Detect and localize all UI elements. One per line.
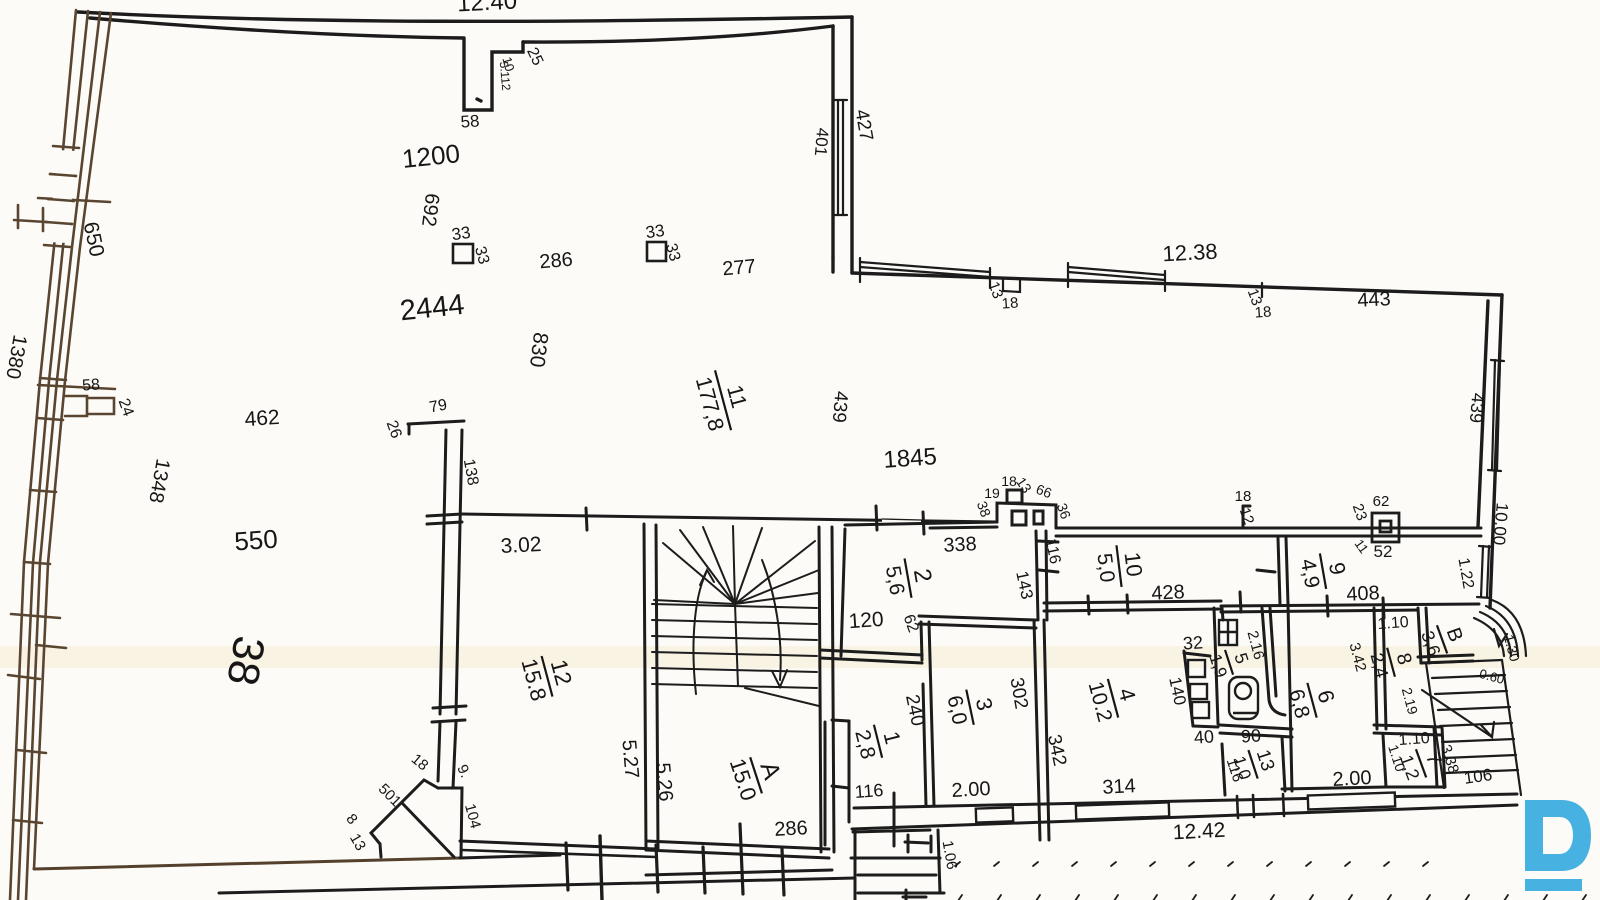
svg-text:33: 33	[450, 223, 471, 244]
svg-text:1845: 1845	[883, 443, 938, 474]
svg-text:439: 439	[1466, 392, 1489, 424]
svg-text:692: 692	[417, 192, 443, 228]
svg-text:2.00: 2.00	[951, 778, 991, 802]
svg-text:19: 19	[984, 485, 1000, 501]
svg-text:550: 550	[233, 524, 278, 557]
svg-text:314: 314	[1102, 775, 1136, 799]
svg-text:408: 408	[1346, 582, 1380, 606]
svg-text:10: 10	[1120, 551, 1148, 578]
svg-text:12.42: 12.42	[1172, 819, 1226, 845]
svg-text:90: 90	[1240, 725, 1261, 746]
svg-text:18: 18	[1235, 488, 1252, 505]
svg-text:5.26: 5.26	[651, 762, 676, 803]
svg-text:32: 32	[1182, 632, 1203, 653]
svg-text:2.00: 2.00	[1332, 767, 1372, 791]
svg-text:120: 120	[848, 608, 885, 633]
svg-text:5.112: 5.112	[497, 61, 514, 92]
svg-text:62: 62	[1373, 493, 1390, 510]
svg-text:116: 116	[854, 780, 884, 802]
svg-text:10.00: 10.00	[1489, 502, 1512, 546]
svg-text:1.10: 1.10	[1398, 730, 1430, 749]
svg-text:428: 428	[1151, 581, 1185, 605]
svg-text:18: 18	[1254, 303, 1272, 321]
svg-text:1.10: 1.10	[1377, 614, 1409, 633]
svg-text:439: 439	[828, 390, 852, 423]
svg-text:286: 286	[774, 817, 808, 841]
svg-text:40: 40	[1193, 726, 1214, 747]
svg-text:2444: 2444	[398, 289, 466, 328]
svg-text:58: 58	[82, 376, 101, 394]
svg-text:443: 443	[1357, 288, 1391, 312]
svg-text:462: 462	[244, 406, 281, 431]
svg-text:33: 33	[644, 221, 665, 242]
svg-text:277: 277	[722, 256, 757, 281]
svg-text:79: 79	[428, 397, 449, 417]
svg-text:106: 106	[1463, 765, 1494, 788]
svg-text:58: 58	[460, 111, 480, 131]
svg-text:338: 338	[943, 533, 977, 557]
svg-text:18: 18	[1001, 294, 1019, 312]
svg-text:5,0: 5,0	[1092, 552, 1118, 584]
svg-text:5.27: 5.27	[617, 739, 642, 780]
svg-text:286: 286	[539, 249, 574, 274]
svg-text:401: 401	[811, 127, 832, 157]
svg-text:38: 38	[217, 632, 274, 689]
svg-text:830: 830	[525, 331, 552, 369]
svg-text:1200: 1200	[401, 138, 462, 174]
svg-text:12.38: 12.38	[1162, 239, 1218, 267]
svg-text:3.02: 3.02	[500, 533, 542, 558]
svg-text:52: 52	[1374, 542, 1393, 561]
